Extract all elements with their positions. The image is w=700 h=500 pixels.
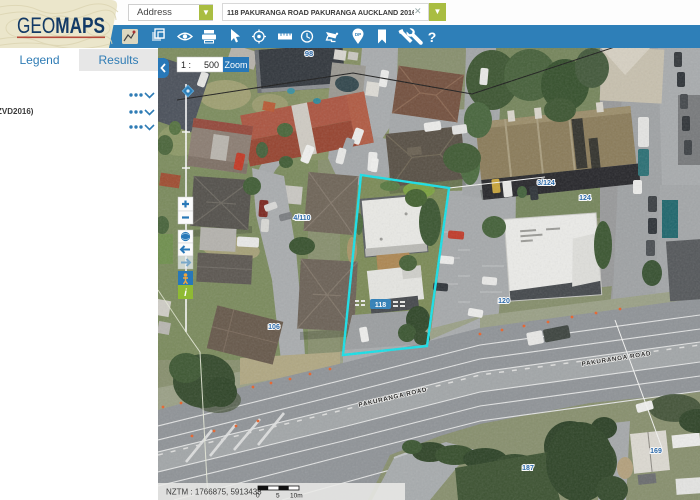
svg-text:i: i <box>184 288 187 299</box>
svg-text:GEOMAPS: GEOMAPS <box>17 13 105 38</box>
svg-text:1 :: 1 : <box>181 60 191 70</box>
svg-text:ZVD2016): ZVD2016) <box>0 107 34 116</box>
svg-text:10m: 10m <box>290 493 303 500</box>
svg-text:0: 0 <box>256 493 260 500</box>
svg-text:500: 500 <box>204 60 219 70</box>
svg-text:NZTM : 1766875, 5913438: NZTM : 1766875, 5913438 <box>166 488 262 497</box>
svg-text:?: ? <box>428 29 437 45</box>
svg-text:5: 5 <box>276 493 280 500</box>
svg-text:DP: DP <box>355 32 361 37</box>
svg-text:Zoom: Zoom <box>224 60 247 70</box>
